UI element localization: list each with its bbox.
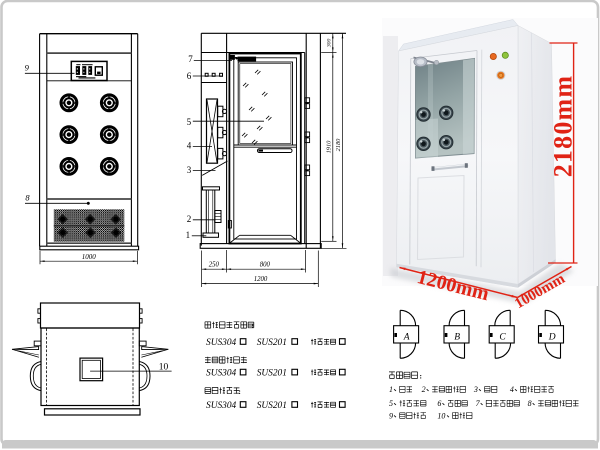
svg-text:4: 4 [510, 385, 514, 394]
svg-text:A: A [403, 332, 410, 342]
svg-text:800: 800 [260, 262, 271, 269]
svg-text:250: 250 [209, 262, 220, 269]
svg-text:SUS201: SUS201 [257, 401, 287, 411]
svg-text:B: B [454, 332, 460, 342]
svg-text:6: 6 [437, 399, 441, 408]
svg-text:9: 9 [389, 411, 393, 420]
svg-text:1: 1 [186, 230, 191, 240]
svg-text:300: 300 [327, 39, 333, 49]
svg-text:SUS304: SUS304 [206, 368, 237, 378]
svg-text:1910: 1910 [325, 140, 332, 154]
svg-text:10: 10 [437, 411, 445, 420]
svg-text:8: 8 [25, 192, 30, 202]
svg-text:1000: 1000 [82, 253, 97, 261]
svg-text:2: 2 [422, 385, 426, 394]
svg-text:SUS201: SUS201 [257, 368, 287, 378]
svg-text:5: 5 [187, 117, 192, 127]
svg-text:3: 3 [187, 165, 192, 175]
svg-text:10: 10 [159, 362, 169, 372]
svg-text:4: 4 [187, 141, 192, 151]
svg-text:C: C [499, 332, 506, 342]
svg-text:2180mm: 2180mm [549, 75, 578, 178]
svg-text::: : [420, 371, 423, 380]
svg-text:7: 7 [188, 54, 193, 64]
svg-text:SUS201: SUS201 [257, 338, 287, 348]
svg-text::: : [239, 388, 241, 396]
svg-text:8: 8 [528, 399, 532, 408]
svg-text:2180: 2180 [335, 138, 342, 152]
svg-text:6: 6 [187, 71, 192, 81]
svg-text:5: 5 [389, 399, 393, 408]
svg-text:9: 9 [25, 62, 30, 72]
svg-text:SUS304: SUS304 [206, 338, 237, 348]
svg-text:2: 2 [187, 214, 192, 224]
svg-text:SUS304: SUS304 [206, 401, 237, 411]
svg-text::: : [245, 357, 247, 365]
svg-text:1: 1 [389, 385, 393, 394]
svg-text:3: 3 [473, 385, 478, 394]
svg-text:1200: 1200 [254, 276, 268, 283]
svg-text:D: D [548, 332, 556, 342]
svg-text::: : [252, 322, 254, 330]
